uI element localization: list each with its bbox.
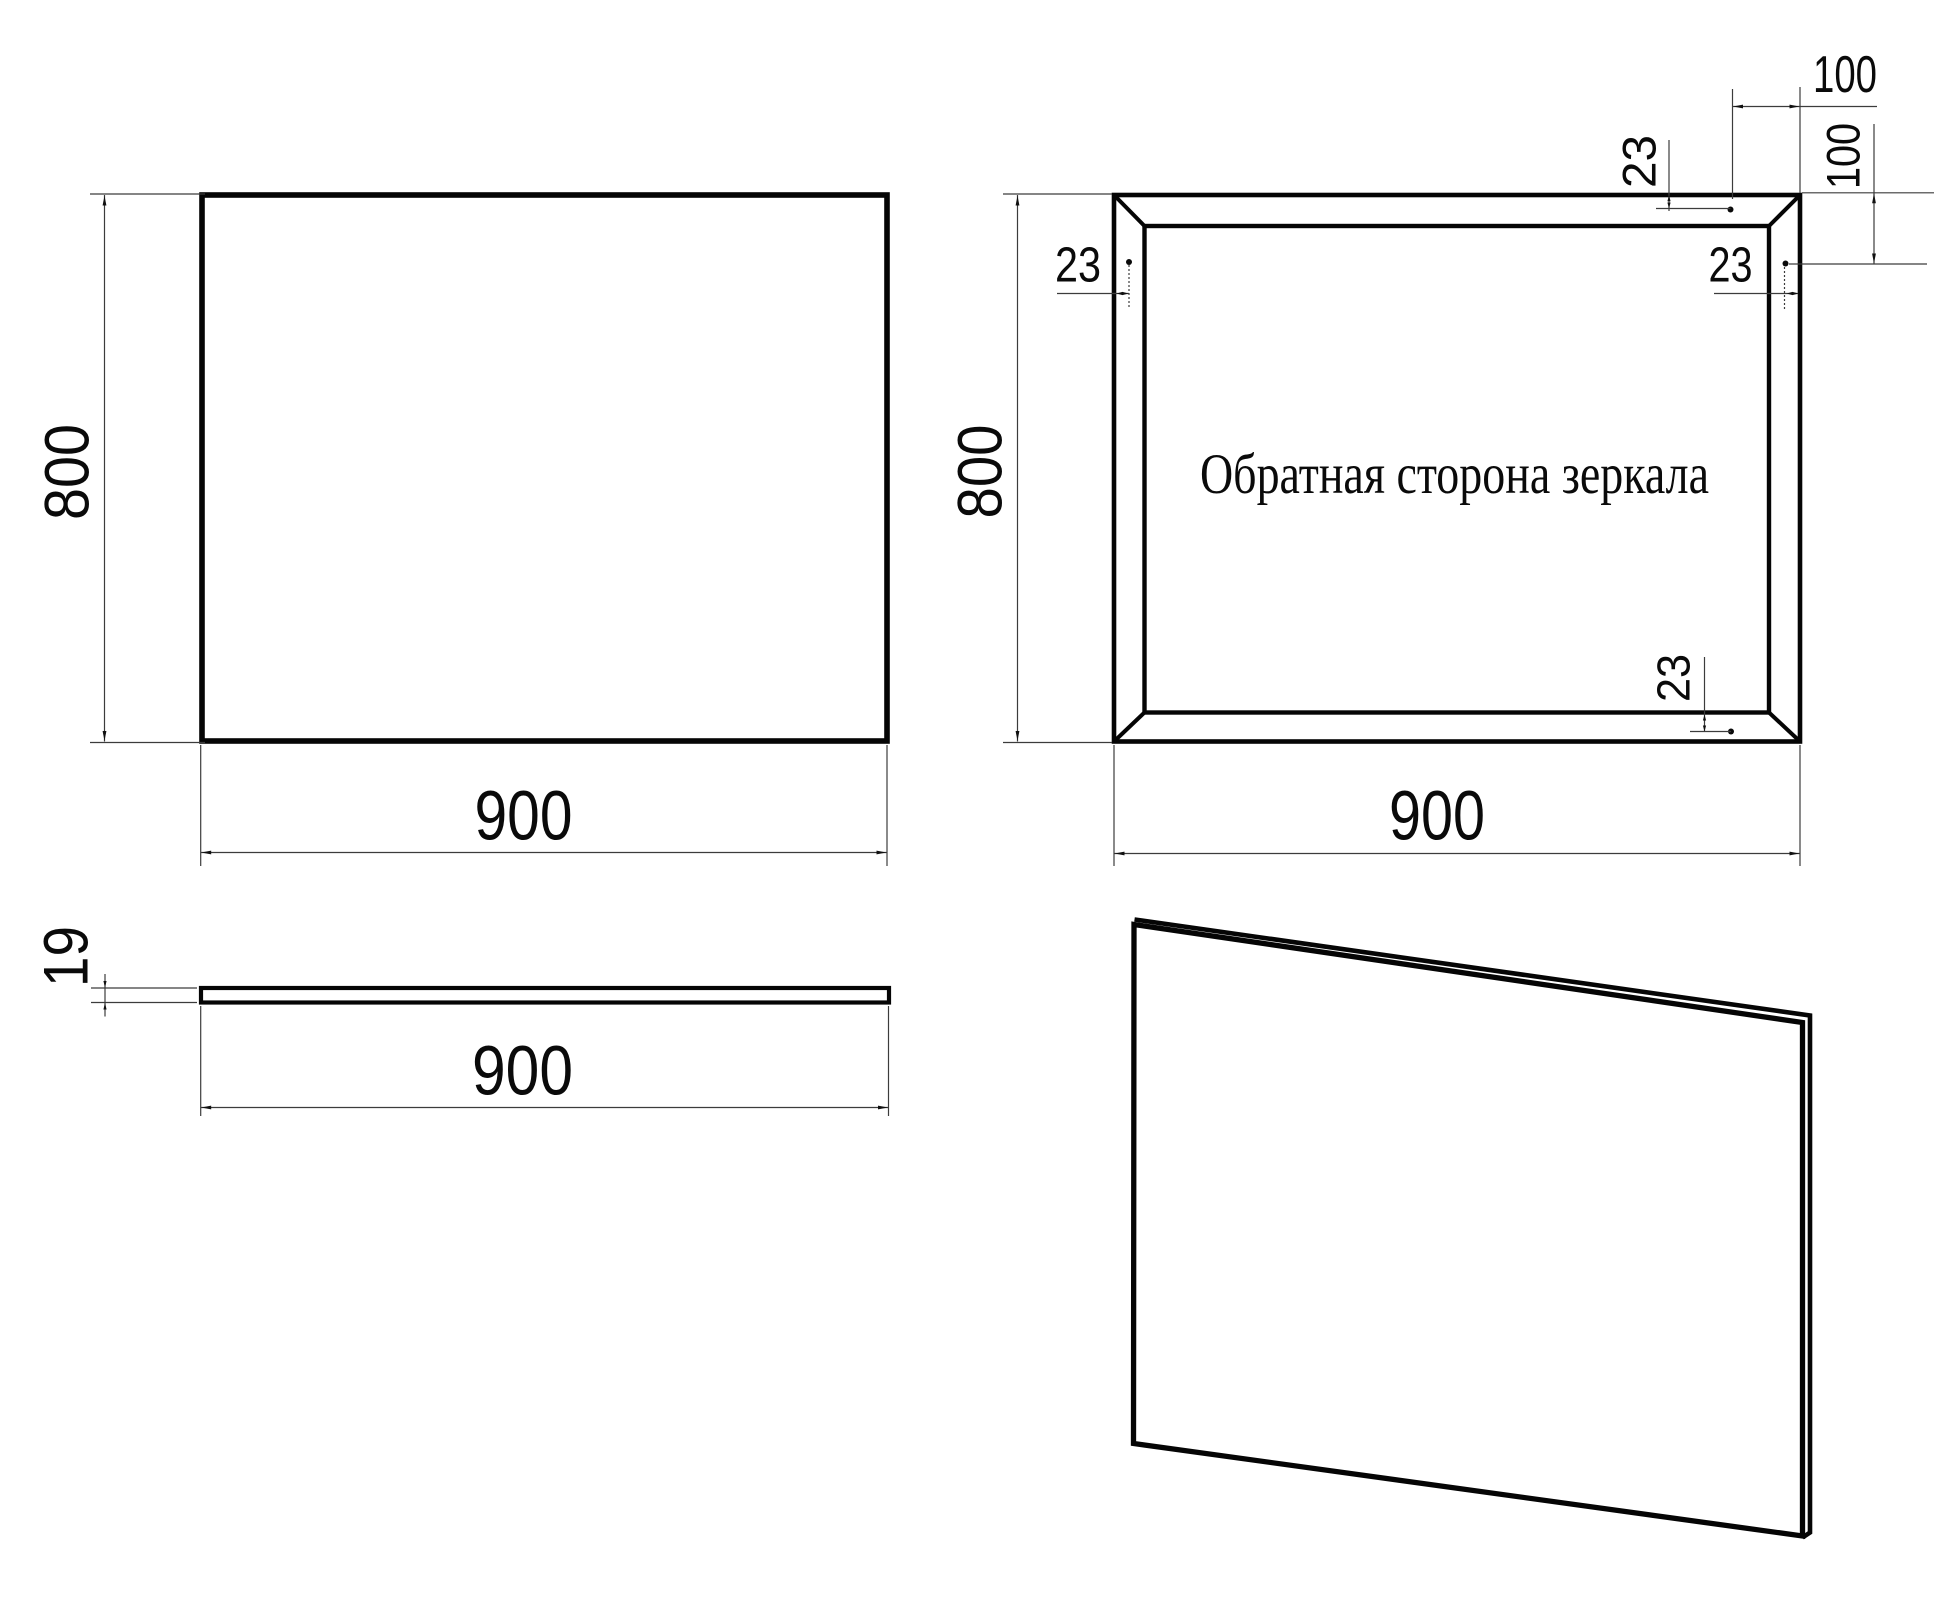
svg-text:900: 900 xyxy=(1389,777,1485,855)
svg-text:23: 23 xyxy=(1648,654,1700,702)
svg-text:100: 100 xyxy=(1818,123,1871,189)
svg-text:Обратная сторона зеркала: Обратная сторона зеркала xyxy=(1200,443,1709,506)
svg-text:800: 800 xyxy=(946,425,1016,519)
svg-text:19: 19 xyxy=(32,926,102,987)
svg-text:23: 23 xyxy=(1055,238,1101,293)
svg-text:23: 23 xyxy=(1709,239,1753,293)
svg-text:100: 100 xyxy=(1813,45,1877,103)
svg-text:900: 900 xyxy=(472,1032,573,1110)
svg-text:800: 800 xyxy=(33,424,103,520)
svg-text:23: 23 xyxy=(1614,135,1667,188)
svg-text:900: 900 xyxy=(475,777,573,855)
